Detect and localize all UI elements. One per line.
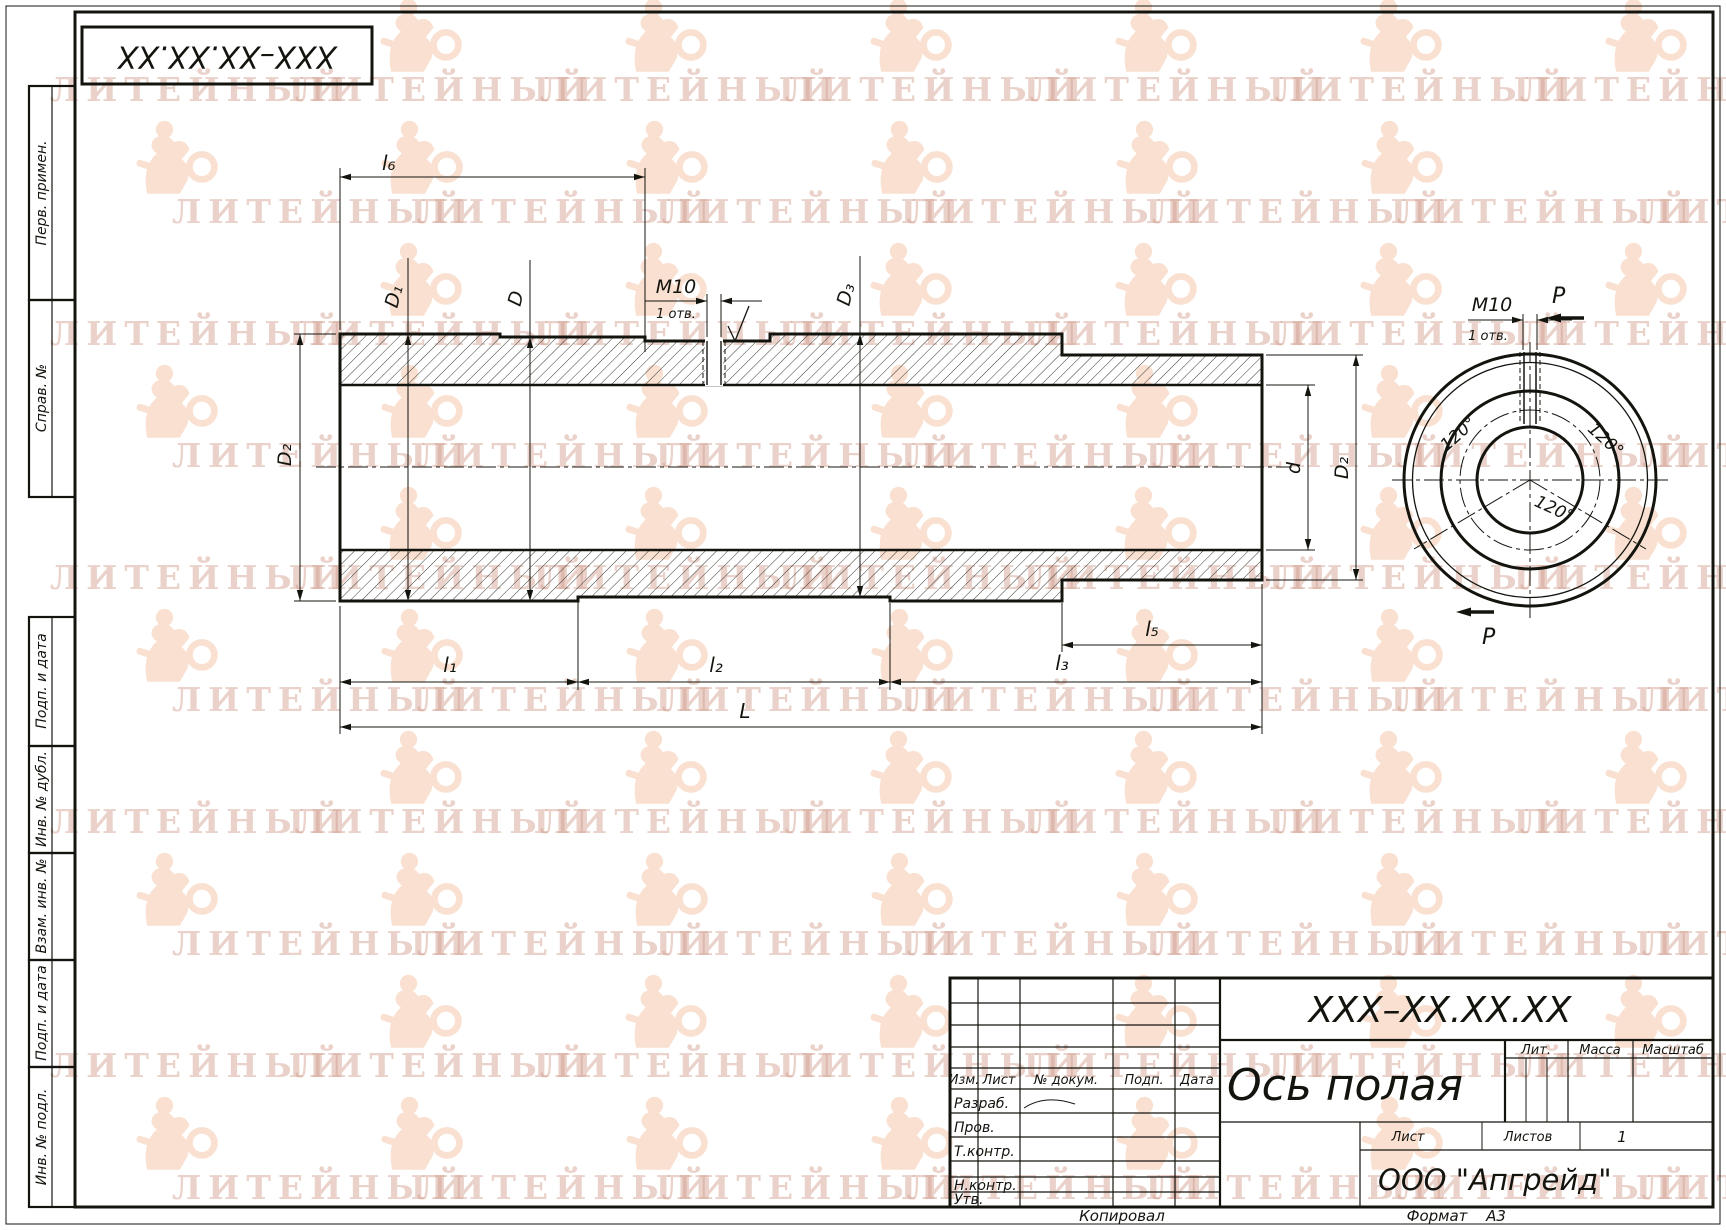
col-date: Дата: [1179, 1073, 1214, 1088]
dim-l6: l₆: [382, 151, 396, 175]
stamp-margin: Перв. примен. Справ. № Подп. и дата Инв.…: [29, 86, 75, 1207]
stamp-label-inv-dubl: Инв. № дубл.: [34, 751, 50, 847]
dim-d3: D₃: [833, 281, 860, 308]
dim-d-bore: d: [1283, 461, 1305, 474]
stamp-label-vzam-inv: Взам. инв. №: [34, 858, 50, 953]
m10-hole: [703, 338, 725, 386]
hdr-lit: Лит.: [1520, 1043, 1551, 1058]
title-designation: XXX–XX.XX.XX: [1307, 990, 1573, 1031]
end-view-m10-note: 1 отв.: [1468, 329, 1508, 344]
designation-box: XXX–XX.XX.XX: [82, 27, 372, 84]
shaft-upper-wall-hatch: [340, 334, 1262, 385]
dim-l3: l₃: [1055, 651, 1069, 675]
row-developed: Разраб.: [954, 1096, 1009, 1112]
angle-label-1: 120°: [1437, 413, 1481, 455]
col-izm: Изм.: [949, 1073, 980, 1088]
dim-l5: l₅: [1145, 617, 1159, 641]
section-label-top: P: [1552, 284, 1566, 309]
stamp-label-podp-data-1: Подп. и дата: [34, 633, 50, 728]
part-name: Ось полая: [1227, 1060, 1463, 1111]
format-value: А3: [1485, 1207, 1506, 1225]
dim-length: L: [739, 699, 750, 723]
row-checked: Пров.: [954, 1120, 995, 1136]
dim-d2-right: D₂: [1331, 456, 1353, 479]
signature: [1024, 1100, 1075, 1108]
dim-m10-note: 1 отв.: [656, 307, 696, 322]
hdr-sheets: Листов: [1503, 1130, 1553, 1145]
copied-label: Копировал: [1079, 1207, 1165, 1225]
dim-d1: D₁: [381, 283, 408, 310]
title-block: Изм. Лист № докум. Подп. Дата Разраб. Пр…: [949, 978, 1713, 1208]
col-list: Лист: [982, 1073, 1016, 1088]
shaft-section-view: [316, 306, 1292, 601]
hdr-scale: Масштаб: [1642, 1043, 1704, 1058]
sheet-frame: [6, 6, 1720, 1224]
dim-l2: l₂: [709, 653, 723, 677]
designation-rotated: XXX–XX.XX.XX: [116, 39, 338, 74]
row-approved: Утв.: [954, 1192, 983, 1208]
dim-l1: l₁: [443, 653, 457, 677]
stamp-label-sprav-no: Справ. №: [34, 364, 50, 432]
section-label-bottom: P: [1482, 625, 1496, 650]
row-tcontrol: Т.контр.: [954, 1144, 1015, 1160]
hdr-mass: Масса: [1579, 1043, 1620, 1058]
engineering-drawing: Перв. примен. Справ. № Подп. и дата Инв.…: [0, 0, 1726, 1230]
dim-d: D: [504, 289, 529, 309]
dim-d2-left: D₂: [274, 443, 296, 466]
end-view: M10 1 отв. P P 120° 120° 120°: [1392, 284, 1668, 650]
stamp-label-perv-primen: Перв. примен.: [34, 140, 50, 245]
company-name: ООО "Апгрейд": [1378, 1163, 1612, 1197]
format-label: Формат: [1407, 1207, 1469, 1225]
col-sign: Подп.: [1124, 1073, 1163, 1088]
surface-finish-icon: [728, 306, 749, 341]
stamp-label-inv-podl: Инв. № подл.: [34, 1089, 50, 1186]
dimensions: l₆ M10 1 отв. D₁ D D₃ D₂ d D₂ l₁ l₂ l₃ l…: [274, 151, 1363, 734]
shaft-lower-wall-hatch: [340, 550, 1262, 601]
dim-m10: M10: [656, 276, 697, 298]
angle-label-3: 120°: [1531, 492, 1577, 527]
end-view-m10: M10: [1472, 294, 1513, 316]
stamp-label-podp-data-2: Подп. и дата: [34, 965, 50, 1060]
hdr-sheet: Лист: [1391, 1130, 1425, 1145]
col-doc: № докум.: [1033, 1073, 1098, 1088]
angle-label-2: 120°: [1583, 419, 1627, 461]
bottom-margin: Копировал Формат А3: [1079, 1207, 1506, 1225]
sheets-value: 1: [1617, 1128, 1627, 1146]
drawing-sheet: ЛИТЕЙНЫЙЛИТЕЙНЫЙЛИТЕЙНЫЙЛИТЕЙНЫЙЛИТЕЙНЫЙ…: [0, 0, 1726, 1230]
